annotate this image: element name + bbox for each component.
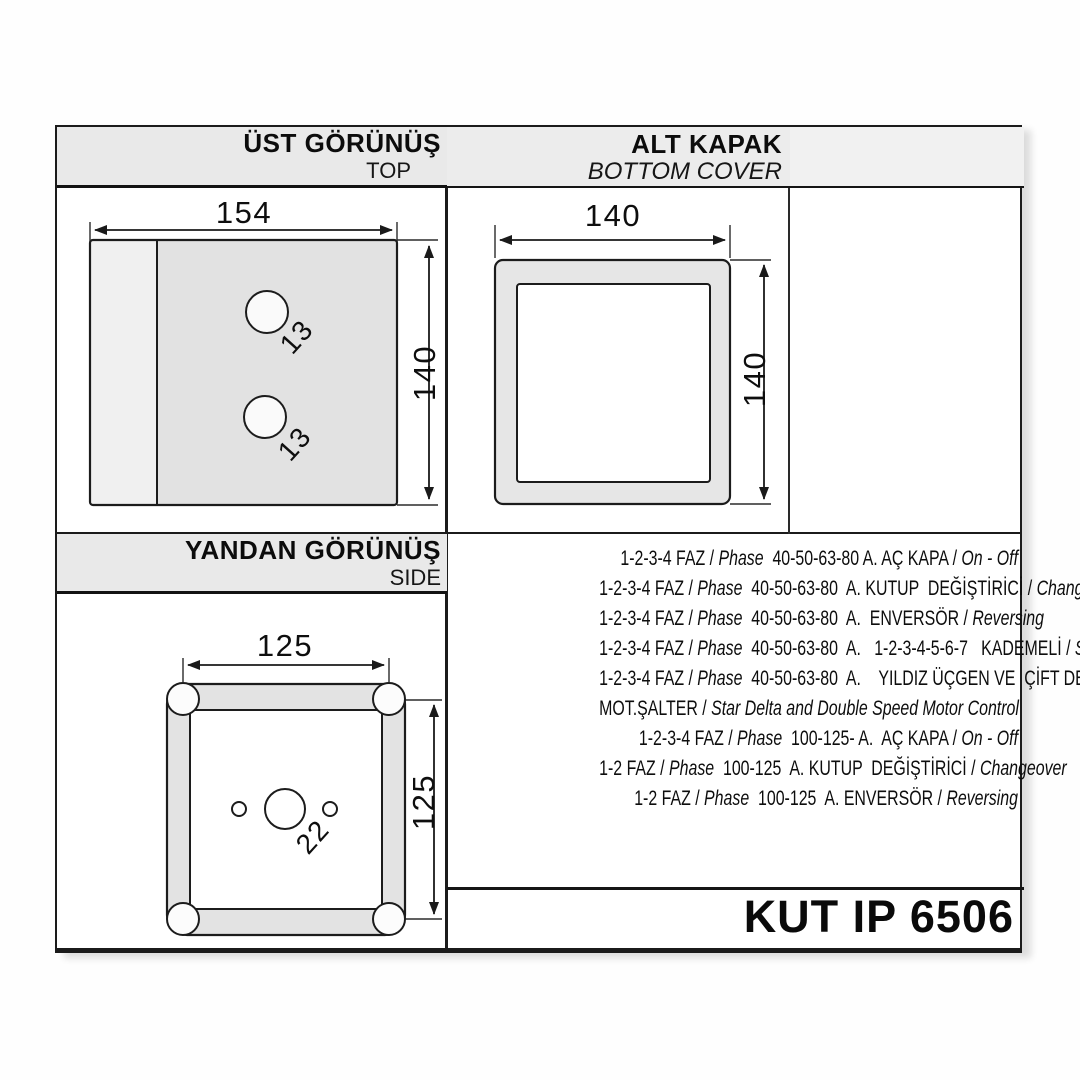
side-view-header: YANDAN GÖRÜNÜŞ SIDE bbox=[57, 534, 447, 594]
side-view-width-dim: 125 bbox=[257, 628, 313, 664]
top-view-height-dim: 140 bbox=[407, 345, 443, 401]
side-view-title-en: SIDE bbox=[390, 565, 441, 590]
spec-line: 1-2-3-4 FAZ / Phase 40-50-63-80 A. AÇ KA… bbox=[599, 543, 1018, 573]
spec-line: 1-2-3-4 FAZ / Phase 40-50-63-80 A. YILDI… bbox=[599, 663, 1018, 693]
spec-line: 1-2-3-4 FAZ / Phase 100-125- A. AÇ KAPA … bbox=[599, 723, 1018, 753]
spec-line: MOT.ŞALTER / Star Delta and Double Speed… bbox=[599, 693, 1018, 723]
bottom-cover-title-tr: ALT KAPAK bbox=[631, 130, 782, 159]
side-view-title-tr: YANDAN GÖRÜNÜŞ bbox=[185, 536, 441, 565]
top-view-drawing bbox=[62, 197, 452, 527]
part-number: KUT IP 6506 bbox=[452, 890, 1018, 944]
top-view-title-en: TOP bbox=[366, 158, 411, 183]
top-view-header: ÜST GÖRÜNÜŞ TOP bbox=[57, 127, 447, 188]
header-empty-cell bbox=[790, 127, 1024, 188]
bottom-cover-width-dim: 140 bbox=[585, 198, 641, 234]
spec-line: 1-2-3-4 FAZ / Phase 40-50-63-80 A. KUTUP… bbox=[599, 573, 1018, 603]
bottom-cover-title-en: BOTTOM COVER bbox=[588, 159, 782, 184]
datasheet-drawing-sheet: ÜST GÖRÜNÜŞ TOP ALT KAPAK BOTTOM COVER Y… bbox=[55, 125, 1022, 953]
spec-line: 1-2 FAZ / Phase 100-125 A. ENVERSÖR / Re… bbox=[599, 783, 1018, 813]
top-view-width-dim: 154 bbox=[216, 195, 272, 231]
spec-line: 1-2-3-4 FAZ / Phase 40-50-63-80 A. ENVER… bbox=[599, 603, 1018, 633]
spec-line: 1-2-3-4 FAZ / Phase 40-50-63-80 A. 1-2-3… bbox=[599, 633, 1018, 663]
spec-lines: 1-2-3-4 FAZ / Phase 40-50-63-80 A. AÇ KA… bbox=[452, 543, 1018, 813]
spec-line: 1-2 FAZ / Phase 100-125 A. KUTUP DEĞİŞTİ… bbox=[599, 753, 1018, 783]
top-view-title-tr: ÜST GÖRÜNÜŞ bbox=[243, 129, 441, 158]
bottom-cover-header: ALT KAPAK BOTTOM COVER bbox=[447, 127, 790, 188]
bottom-cover-height-dim: 140 bbox=[737, 351, 773, 407]
side-view-height-dim: 125 bbox=[406, 774, 442, 830]
